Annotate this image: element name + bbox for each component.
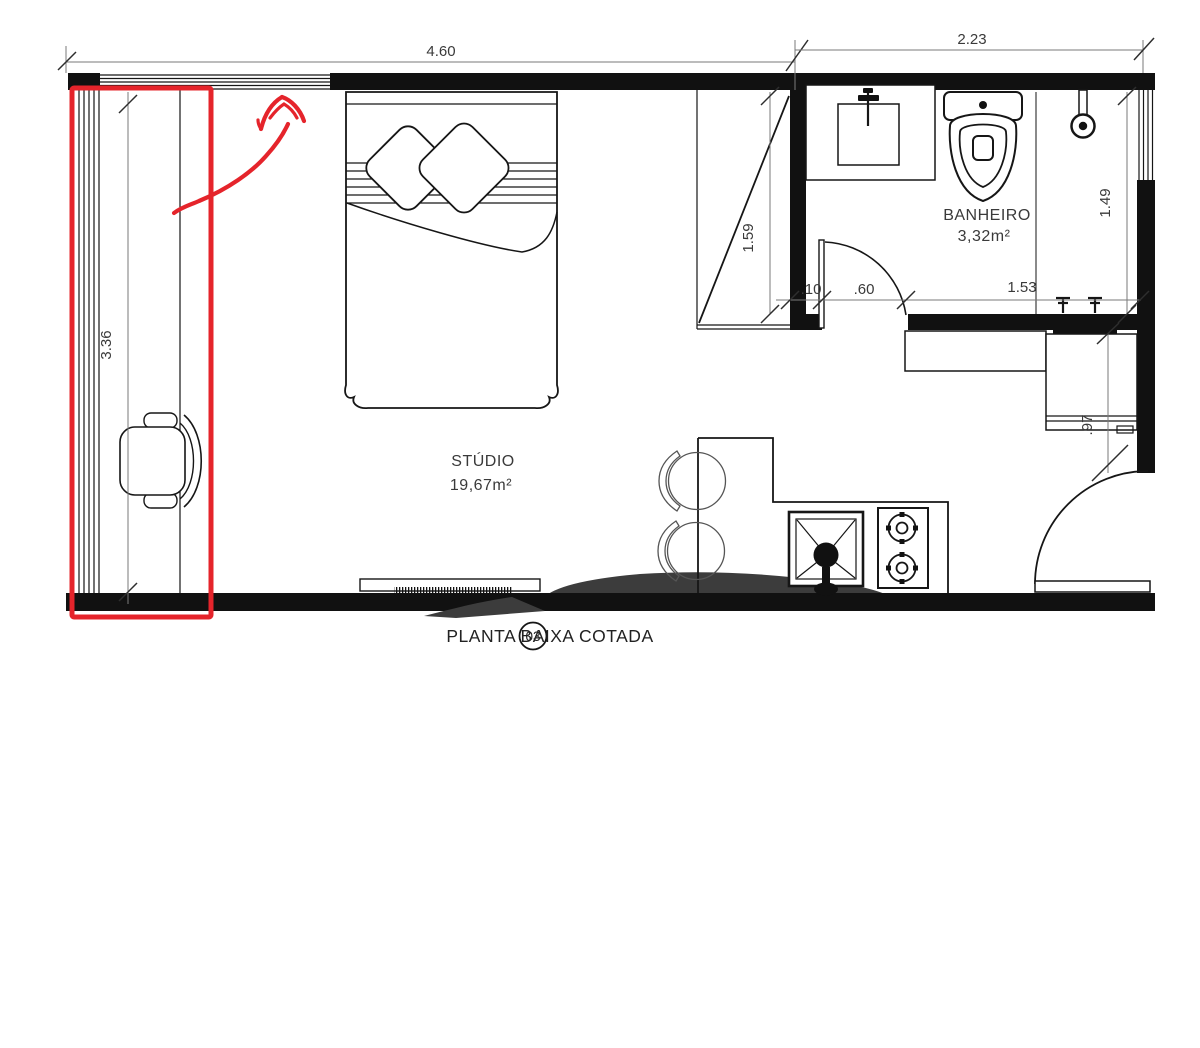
bathroom-area: 3,32m²: [958, 228, 1011, 245]
right-window-band: [1139, 90, 1153, 180]
bed: [345, 92, 558, 408]
sink-drain: [814, 543, 839, 568]
entry-door: [1035, 471, 1150, 592]
dimension-label-width-main: 4.60: [426, 43, 455, 60]
studio-area: 19,67m²: [450, 477, 512, 494]
red-highlight-rectangle: [72, 88, 211, 617]
chair-backrest-outer: [184, 415, 201, 507]
wall-top: [330, 73, 1155, 90]
shower-icon: [1072, 90, 1095, 138]
tv-hatch: [394, 587, 512, 594]
dimension-label-bath-bottom: 1.53: [1007, 279, 1036, 296]
sink-faucet: [814, 583, 838, 596]
stove: [878, 508, 928, 588]
dimension-label-height-left: 3.36: [98, 330, 115, 359]
dimension-label-closet: 1.59: [740, 223, 757, 252]
drawing-title: 03 PLANTA BAIXA COTADA: [446, 623, 653, 650]
chair-seat: [120, 427, 185, 495]
red-arrow: [174, 97, 304, 213]
counter-right: [905, 330, 1137, 433]
dimension-label-door-width: .60: [854, 281, 875, 298]
stool: [658, 521, 725, 581]
dimension-label-width-bathroom: 2.23: [957, 31, 986, 48]
bathroom-name: BANHEIRO: [943, 207, 1031, 224]
dimension-label-cabinet-depth: .97: [1079, 415, 1096, 436]
entry-door-swing: [1035, 471, 1148, 584]
dimension-label-door-jamb: .10: [801, 281, 822, 298]
bathroom-sink: [806, 85, 935, 180]
bathroom-door-swing: [825, 242, 906, 315]
bar-stools: [658, 451, 726, 581]
chair-armrest-top: [144, 413, 177, 428]
floor-plan-drawing: 4.60 2.23 3.36 1.59 1.49 .10 .60 1.53: [0, 0, 1200, 1048]
tv-console: [360, 579, 540, 594]
closet: [697, 90, 790, 329]
kitchen-sink: [789, 512, 863, 596]
entry-door-leaf: [1035, 581, 1150, 592]
studio-name: STÚDIO: [451, 451, 514, 470]
left-window-band: [79, 90, 99, 593]
office-chair: [120, 413, 201, 508]
closet-diagonal: [699, 96, 789, 323]
wall-bottom: [66, 593, 1155, 611]
floor-plan-page: 4.60 2.23 3.36 1.59 1.49 .10 .60 1.53: [0, 0, 1200, 1048]
toilet-icon: [944, 92, 1022, 201]
dimension-label-bath-right: 1.49: [1097, 188, 1114, 217]
stool: [659, 451, 726, 511]
title-label: PLANTA BAIXA COTADA: [446, 626, 653, 646]
